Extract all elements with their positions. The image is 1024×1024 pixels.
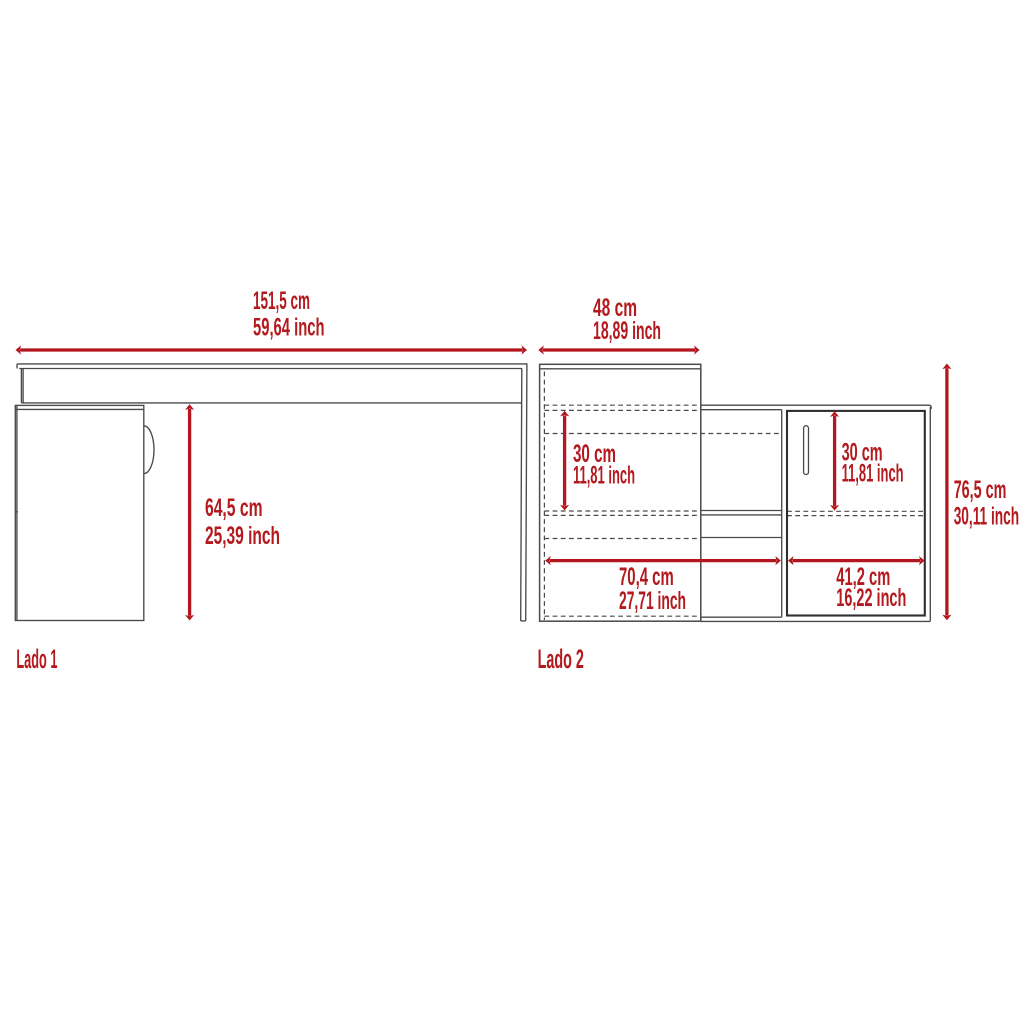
svg-text:Lado 2: Lado 2 [538, 644, 584, 674]
svg-text:70,4 cm: 70,4 cm [619, 564, 674, 591]
svg-text:30,11 inch: 30,11 inch [954, 504, 1019, 531]
svg-text:11,81 inch: 11,81 inch [573, 463, 635, 490]
svg-text:27,71 inch: 27,71 inch [619, 588, 686, 615]
svg-text:59,64 inch: 59,64 inch [253, 315, 325, 342]
svg-text:76,5 cm: 76,5 cm [954, 477, 1007, 504]
svg-text:18,89 inch: 18,89 inch [593, 318, 661, 345]
svg-text:64,5 cm: 64,5 cm [205, 495, 263, 522]
svg-text:Lado 1: Lado 1 [16, 644, 57, 674]
svg-text:151,5 cm: 151,5 cm [253, 288, 310, 315]
svg-text:25,39 inch: 25,39 inch [205, 523, 280, 550]
svg-text:16,22 inch: 16,22 inch [836, 585, 906, 612]
svg-text:11,81 inch: 11,81 inch [842, 461, 904, 488]
